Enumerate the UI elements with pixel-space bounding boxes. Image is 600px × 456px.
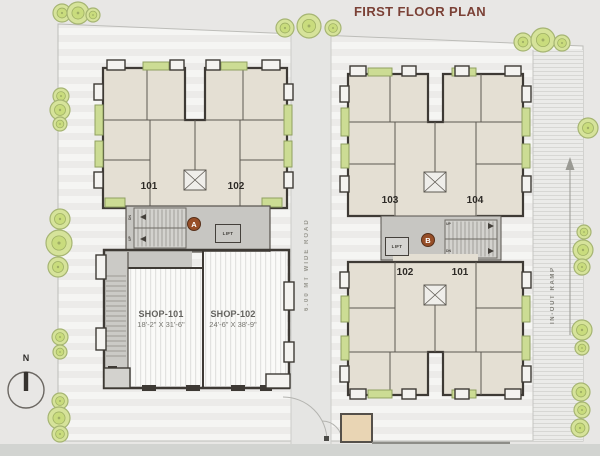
stair-a-dn-label: DN xyxy=(128,211,132,223)
tree-icon xyxy=(574,259,590,275)
tree-icon xyxy=(52,329,68,345)
tree-icon xyxy=(53,345,67,359)
unit-label-b-102: 102 xyxy=(389,268,421,279)
tree-icon xyxy=(572,383,590,401)
tree-icon xyxy=(574,402,590,418)
tree-icon xyxy=(52,426,68,442)
bottom-road-strip xyxy=(0,444,600,456)
tree-icon xyxy=(53,117,67,131)
shop-102-name: SHOP-102 xyxy=(191,310,275,319)
lift-b: LIFT xyxy=(385,237,409,256)
unit-label-b-104: 104 xyxy=(459,196,491,207)
tree-icon xyxy=(554,35,570,51)
tree-icon xyxy=(577,225,591,239)
tree-icon xyxy=(573,240,593,260)
security-cabin xyxy=(341,414,372,442)
north-compass-icon xyxy=(8,372,44,408)
unit-label-b-101: 101 xyxy=(444,268,476,279)
block-a-staircase xyxy=(134,208,186,248)
block-a-marker: A xyxy=(187,217,201,231)
shop-102-size: 24'-6" X 38'-9" xyxy=(191,321,275,329)
lift-a: LIFT xyxy=(215,224,241,243)
stair-a-up-label: UP xyxy=(128,233,132,245)
tree-icon xyxy=(297,14,321,38)
tree-icon xyxy=(531,28,555,52)
tree-icon xyxy=(571,419,589,437)
tree-icon xyxy=(46,230,72,256)
unit-label-a-102: 102 xyxy=(220,182,252,193)
ramp-label: IN-OUT RAMP xyxy=(550,245,564,345)
tree-icon xyxy=(276,19,294,37)
page-title: FIRST FLOOR PLAN xyxy=(320,5,520,19)
north-label: N xyxy=(18,354,34,363)
tree-icon xyxy=(578,118,598,138)
road-label: 6.00 MT WIDE ROAD xyxy=(304,210,318,320)
unit-label-b-103: 103 xyxy=(374,196,406,207)
block-b-marker: B xyxy=(421,233,435,247)
tree-icon xyxy=(50,209,70,229)
unit-label-a-101: 101 xyxy=(133,182,165,193)
tree-icon xyxy=(86,8,100,22)
tree-icon xyxy=(575,341,589,355)
site-plan-drawing xyxy=(0,0,600,456)
floor-plan-canvas: FIRST FLOOR PLAN 101 102 103 104 102 101… xyxy=(0,0,600,456)
tree-icon xyxy=(514,33,532,51)
tree-icon xyxy=(48,257,68,277)
stair-b-dn-label: DN xyxy=(446,250,451,254)
stair-b-up-label: UP xyxy=(446,223,451,227)
tree-icon xyxy=(325,20,341,36)
tree-icon xyxy=(572,320,592,340)
block-b-staircase xyxy=(445,220,497,258)
